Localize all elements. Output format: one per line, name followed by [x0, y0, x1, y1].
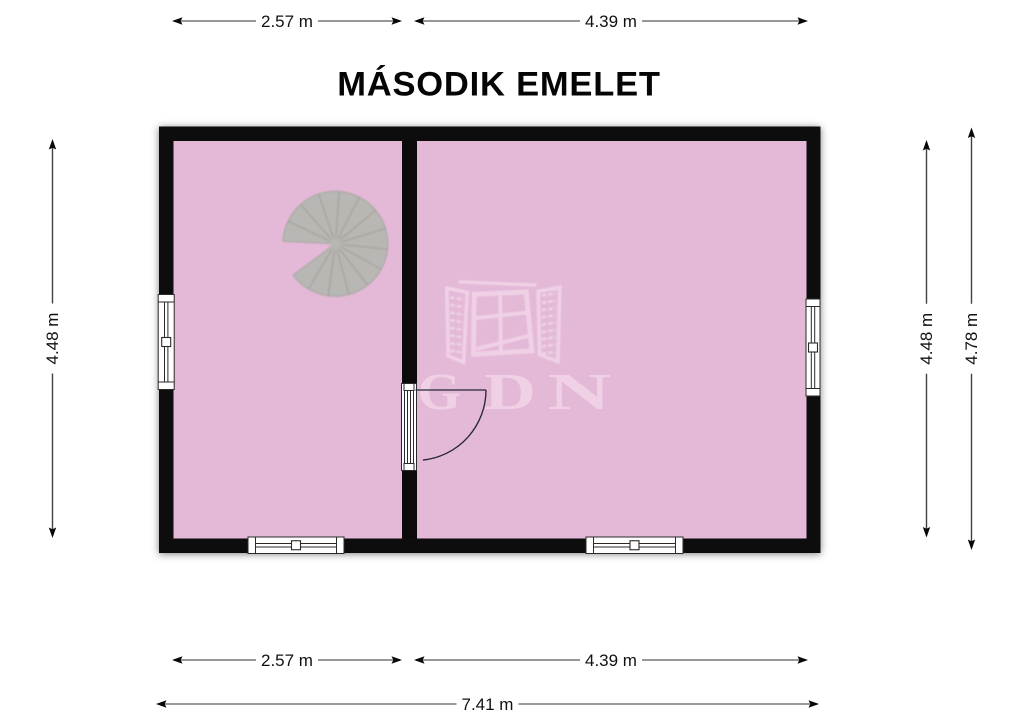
svg-text:G: G	[418, 364, 462, 421]
svg-text:7.41 m: 7.41 m	[462, 695, 514, 714]
svg-text:2.57 m: 2.57 m	[261, 12, 313, 31]
svg-text:MÁSODIK EMELET: MÁSODIK EMELET	[337, 64, 661, 104]
svg-text:4.48 m: 4.48 m	[43, 313, 62, 365]
svg-text:2.57 m: 2.57 m	[261, 651, 313, 670]
svg-text:4.39 m: 4.39 m	[585, 651, 637, 670]
svg-text:D: D	[484, 364, 536, 421]
svg-text:4.78 m: 4.78 m	[962, 313, 981, 365]
svg-text:4.48 m: 4.48 m	[917, 313, 936, 365]
svg-text:4.39 m: 4.39 m	[585, 12, 637, 31]
svg-text:N: N	[548, 364, 612, 421]
